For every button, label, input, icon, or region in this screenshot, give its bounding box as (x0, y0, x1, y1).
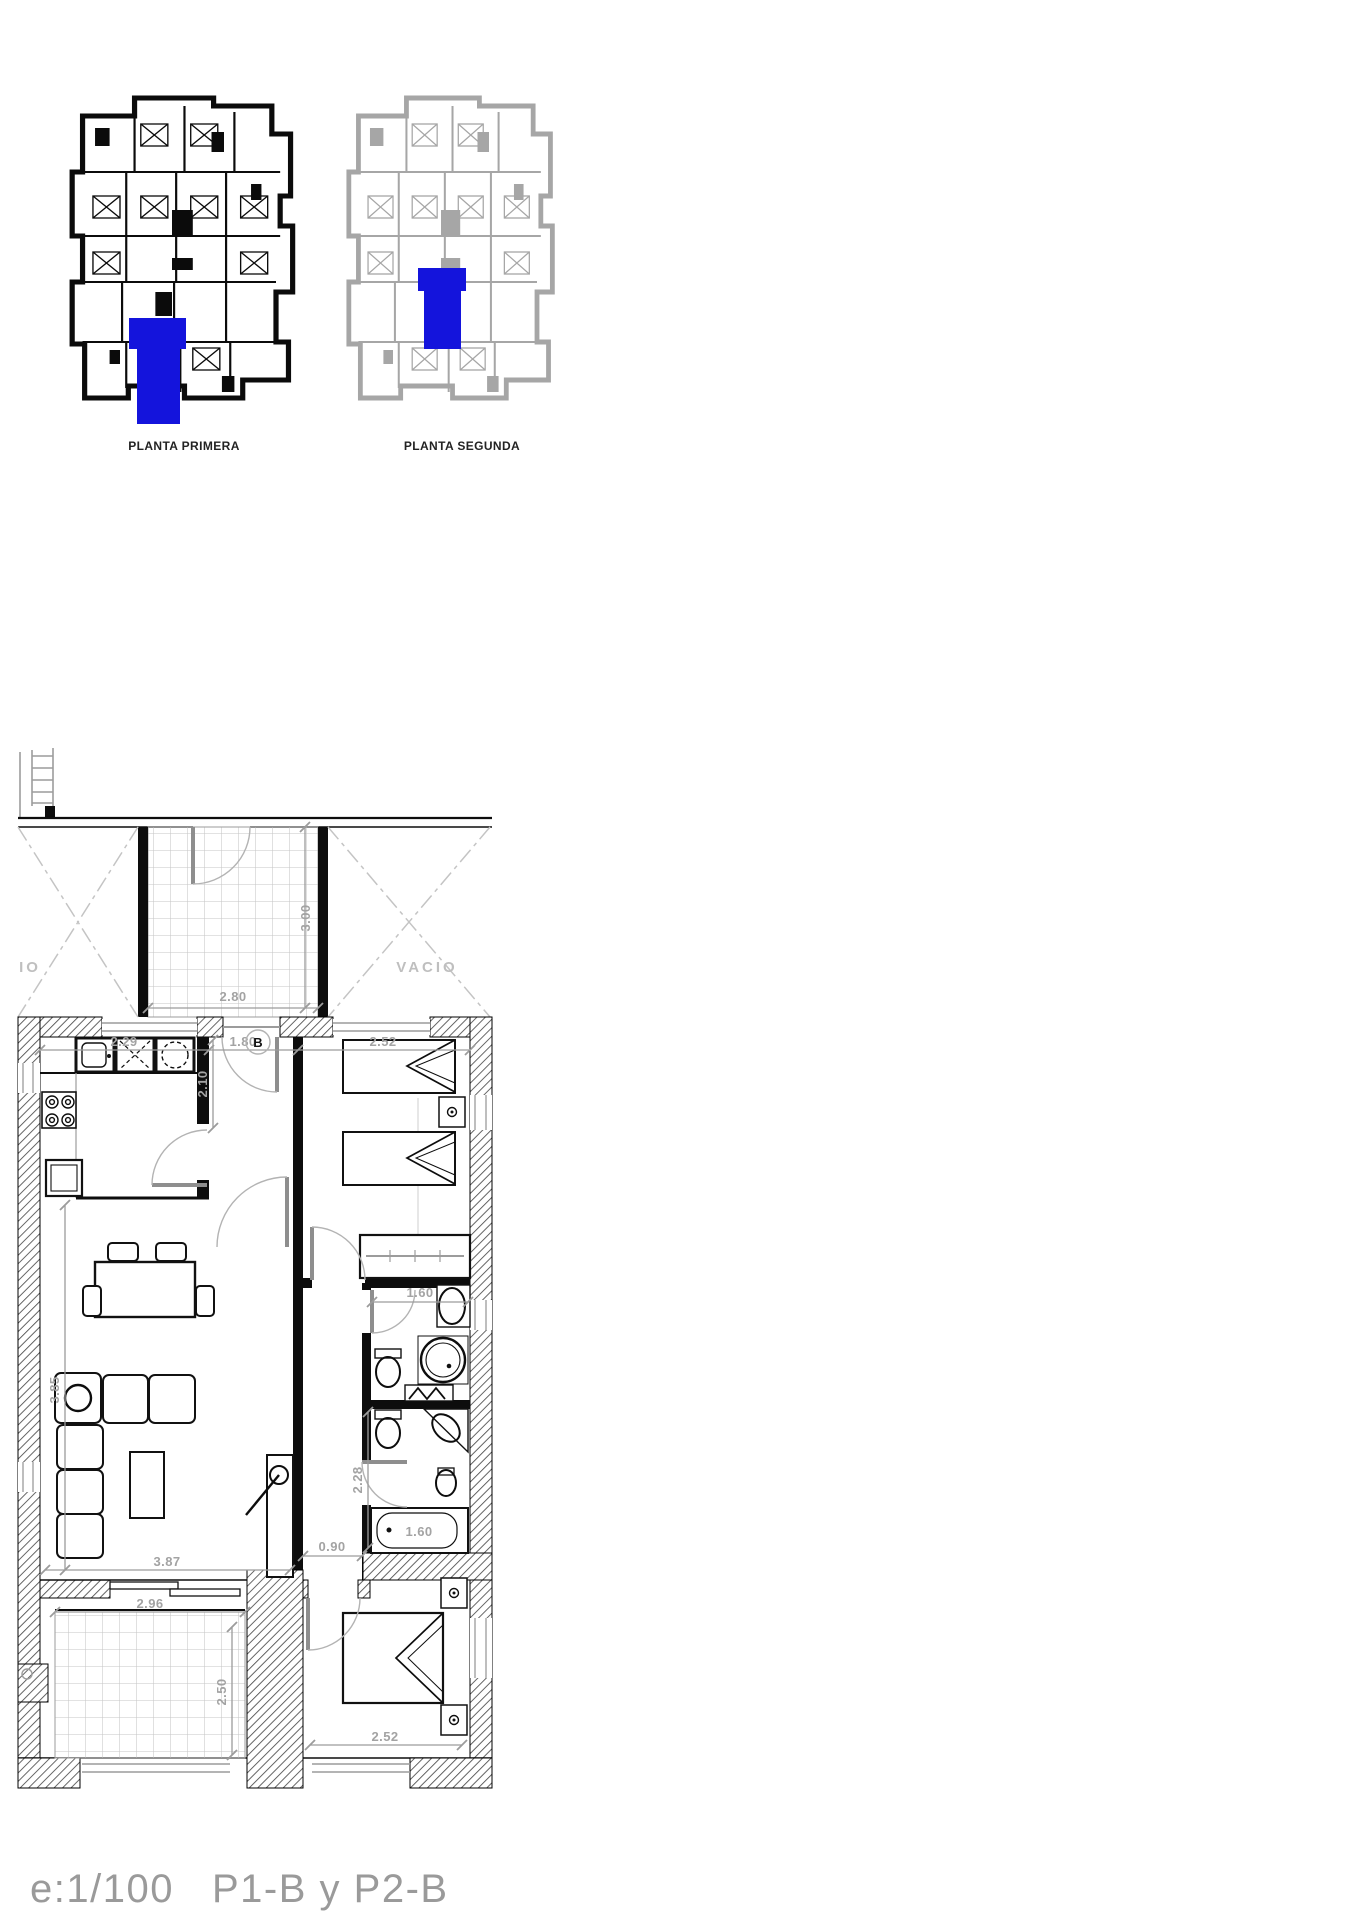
upper-boundary (18, 748, 492, 827)
chair (108, 1243, 138, 1261)
drawing-sheet: PLANTA PRIMERA PLANTA SEGUNDA IO VACIO (0, 0, 1357, 1920)
dining-table (95, 1262, 195, 1317)
second-floor-keyplan (349, 98, 553, 398)
dim-bath-depth: 2.28 (350, 1467, 365, 1494)
coffee-table (130, 1452, 164, 1518)
chair (196, 1286, 214, 1316)
dim-terrace-depth: 2.50 (214, 1679, 229, 1706)
void-right-label: VACIO (396, 959, 457, 976)
kitchen-sink (82, 1043, 106, 1067)
toilet-2 (376, 1418, 400, 1448)
chair (156, 1243, 186, 1261)
title-note: e:1/100 P1-B y P2-B (30, 1867, 449, 1911)
dim-bedroom1-width: 2.52 (372, 1729, 399, 1744)
dim-bath1-width: 1.60 (407, 1285, 434, 1300)
plan-drawing: PLANTA PRIMERA PLANTA SEGUNDA IO VACIO (0, 0, 1357, 1920)
sofa-seat (57, 1514, 103, 1558)
dim-kitchen-width: 2.29 (111, 1034, 138, 1049)
bedroom-2 (343, 1040, 470, 1278)
single-bed-2 (343, 1132, 455, 1185)
dim-terrace-width: 2.96 (137, 1596, 164, 1611)
main-floor-plan: IO VACIO (18, 748, 492, 1788)
first-floor-label: PLANTA PRIMERA (128, 439, 240, 453)
scale-label: e:1/100 (30, 1867, 174, 1911)
dim-living-depth: 3.85 (47, 1377, 62, 1404)
second-floor-label: PLANTA SEGUNDA (404, 439, 520, 453)
dim-patio-width: 2.80 (220, 989, 247, 1004)
sofa-seat (57, 1425, 103, 1469)
single-bed-1 (343, 1040, 455, 1093)
radiator (405, 1385, 453, 1401)
first-floor-keyplan (72, 98, 292, 398)
toilet (376, 1357, 400, 1387)
unit-codes-label: P1-B y P2-B (212, 1867, 449, 1911)
void-left-label: IO (19, 959, 41, 976)
bedroom-1 (343, 1578, 467, 1735)
chair (83, 1286, 101, 1316)
unit-letter: B (253, 1035, 262, 1050)
dim-bathtub-length: 1.60 (406, 1524, 433, 1539)
highlighted-unit-second-floor (418, 268, 466, 349)
sofa-seat (57, 1470, 103, 1514)
dim-kitchen-depth: 2.10 (195, 1071, 210, 1098)
kitchen (40, 1038, 209, 1198)
overview-plans: PLANTA PRIMERA PLANTA SEGUNDA (72, 98, 552, 453)
dim-bedroom2-width: 2.52 (370, 1034, 397, 1049)
dim-living-width: 3.87 (154, 1554, 181, 1569)
dim-patio-depth: 3.00 (298, 905, 313, 932)
living-dining-room (55, 1243, 293, 1577)
highlighted-unit-first-floor (129, 318, 186, 424)
dim-corridor-width: 0.90 (319, 1539, 346, 1554)
sofa-seat (103, 1375, 148, 1423)
sofa-seat (149, 1375, 195, 1423)
